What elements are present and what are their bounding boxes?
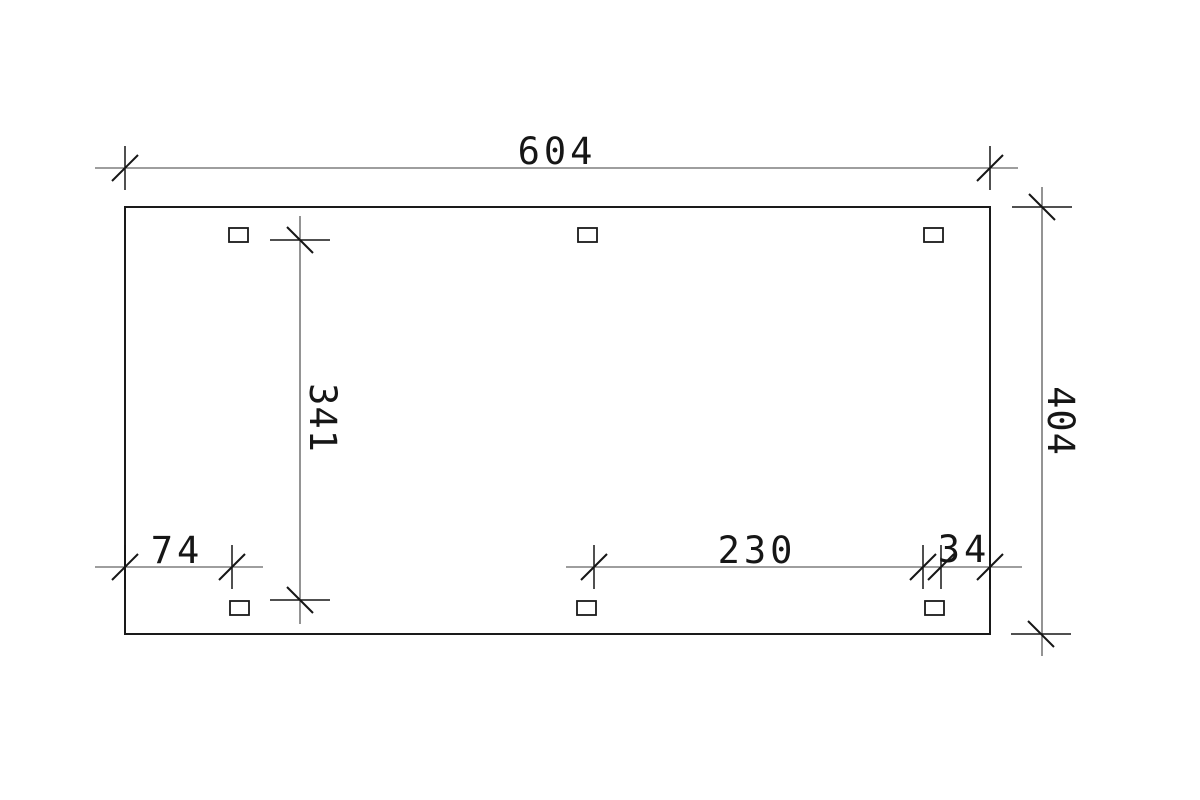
plan-outline [125,207,990,634]
post-marker-top-left [229,228,248,242]
post-marker-top-right [924,228,943,242]
dim-label-top-width: 604 [518,130,597,173]
dim-label-right-depth: 404 [1039,386,1082,456]
dim-label-bottom-mid-span: 230 [718,529,797,572]
post-marker-top-middle [578,228,597,242]
post-marker-bottom-middle [577,601,596,615]
dimension-bottom-left-span: 74 [95,529,263,589]
dimension-top-width: 604 [95,130,1018,190]
dim-label-inner-depth: 341 [301,383,344,453]
dimension-right-depth: 404 [1011,187,1082,656]
dim-label-bottom-left-span: 74 [151,529,204,572]
dimension-inner-depth: 341 [270,216,344,624]
post-marker-bottom-right [925,601,944,615]
dimension-bottom-right-spans: 230 34 [566,528,1022,589]
post-marker-bottom-left [230,601,249,615]
dimension-plan-svg: 604 404 341 74 [0,0,1200,800]
drawing-canvas: 604 404 341 74 [0,0,1200,800]
dim-label-bottom-right-span: 34 [938,528,991,571]
